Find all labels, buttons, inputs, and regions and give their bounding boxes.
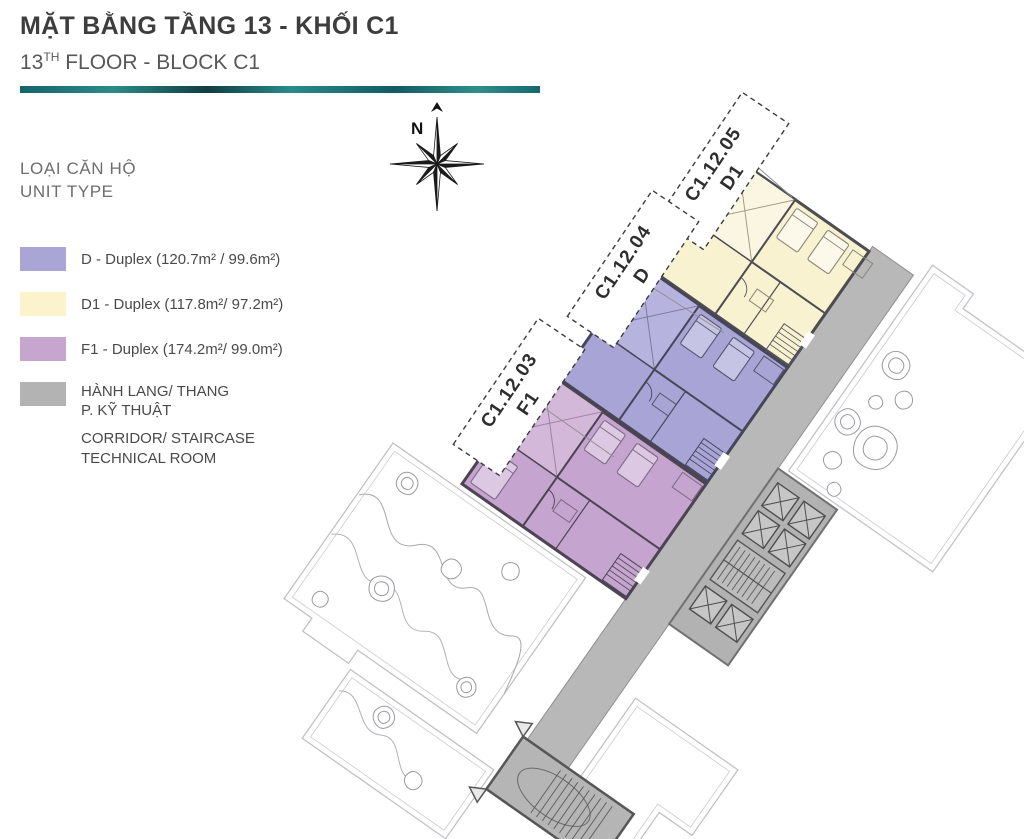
compass-rose-icon — [390, 117, 484, 211]
compass-rose-point — [434, 117, 437, 164]
compass-rose-point — [434, 164, 437, 211]
compass-rose-point — [437, 164, 440, 211]
north-arrow-icon — [431, 102, 443, 112]
compass-rose-point — [390, 164, 437, 167]
compass-rose-point — [390, 161, 437, 164]
compass-north-label: N — [411, 119, 423, 138]
planting-blob — [374, 581, 389, 596]
compass-rose-point — [437, 161, 484, 164]
compass-rose-point — [437, 164, 484, 167]
floor-plan-canvas: C1.12.05 D1 C1.12.04 D C1.12.03 F1 N — [0, 0, 1024, 839]
stair-wing-wall — [511, 715, 532, 737]
compass: N — [390, 102, 484, 211]
floor-plan — [224, 70, 1024, 839]
compass-rose-point — [437, 117, 440, 164]
